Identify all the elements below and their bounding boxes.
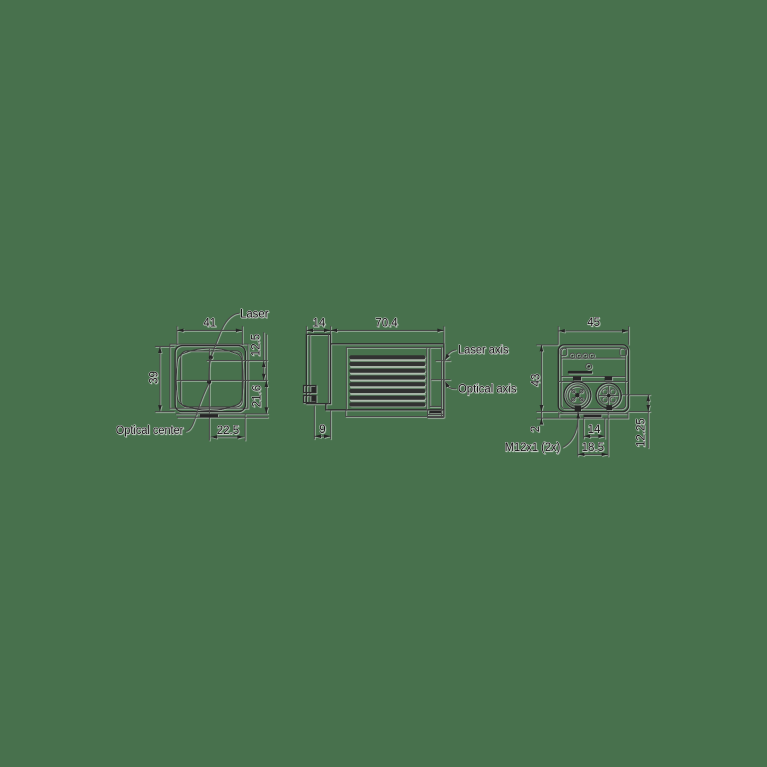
svg-text:Optical center: Optical center <box>116 425 184 437</box>
svg-text:41: 41 <box>203 317 216 329</box>
svg-text:18.5: 18.5 <box>582 442 604 454</box>
svg-text:Laser axis: Laser axis <box>458 345 509 357</box>
svg-text:12.5: 12.5 <box>251 334 263 356</box>
svg-text:12.25: 12.25 <box>636 418 648 447</box>
svg-text:14: 14 <box>588 424 601 436</box>
svg-text:21.6: 21.6 <box>252 385 264 407</box>
svg-text:14: 14 <box>313 317 326 329</box>
svg-text:Optical axis: Optical axis <box>458 384 517 396</box>
svg-text:Laser: Laser <box>240 309 269 321</box>
svg-text:39: 39 <box>148 371 160 384</box>
svg-text:M12x1 (2x): M12x1 (2x) <box>505 442 561 454</box>
svg-text:43: 43 <box>530 374 542 387</box>
svg-text:22.5: 22.5 <box>217 425 239 437</box>
svg-text:2: 2 <box>530 426 542 432</box>
svg-text:45: 45 <box>587 317 600 329</box>
svg-text:70.4: 70.4 <box>375 317 398 329</box>
svg-text:9: 9 <box>319 424 325 436</box>
